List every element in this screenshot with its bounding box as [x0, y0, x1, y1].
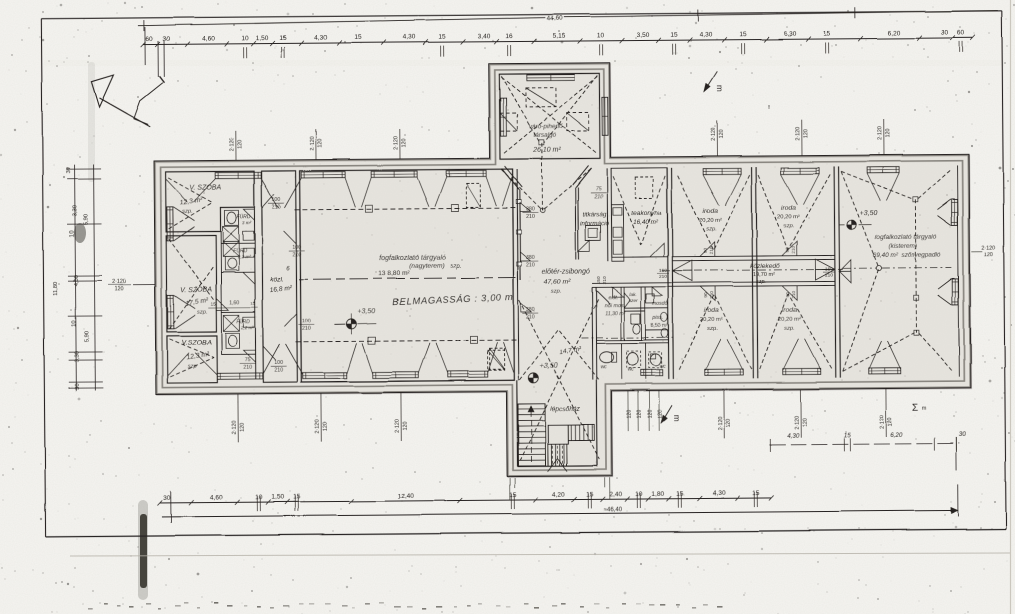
svg-text:30: 30: [941, 30, 949, 37]
svg-text:11,30 m²: 11,30 m²: [605, 311, 625, 317]
svg-text:4,30: 4,30: [315, 35, 328, 42]
svg-text:10: 10: [70, 230, 76, 237]
svg-text:15: 15: [354, 34, 362, 41]
svg-text:210: 210: [302, 326, 311, 332]
svg-text:4,60: 4,60: [209, 494, 222, 501]
svg-text:210: 210: [272, 205, 281, 211]
svg-text:120: 120: [115, 286, 124, 292]
svg-text:2·120: 2·120: [393, 136, 399, 150]
svg-text:közlekedő: közlekedő: [750, 263, 780, 270]
svg-text:titkárság: titkárság: [583, 211, 607, 218]
svg-text:2,40: 2,40: [609, 491, 622, 498]
svg-text:75: 75: [245, 357, 251, 363]
svg-text:210: 210: [526, 214, 535, 220]
svg-text:5,15: 5,15: [553, 33, 566, 40]
svg-text:15: 15: [250, 301, 256, 307]
svg-text:15: 15: [586, 491, 594, 498]
svg-text:120: 120: [888, 417, 894, 426]
svg-text:90: 90: [703, 247, 708, 253]
svg-text:210: 210: [243, 365, 252, 371]
svg-text:3,40: 3,40: [478, 33, 491, 40]
svg-text:+3,50: +3,50: [357, 308, 375, 315]
svg-text:társalgó: társalgó: [533, 132, 556, 139]
svg-text:15: 15: [739, 31, 747, 38]
svg-text:előt.: előt.: [608, 295, 618, 301]
svg-text:120: 120: [317, 139, 323, 148]
svg-text:19,70 m²: 19,70 m²: [753, 272, 775, 278]
svg-text:15: 15: [752, 490, 760, 497]
svg-text:10: 10: [71, 320, 77, 327]
svg-text:30: 30: [162, 36, 170, 43]
svg-text:10: 10: [597, 32, 605, 39]
svg-text:15: 15: [509, 492, 517, 499]
svg-text:szp.: szp.: [450, 263, 461, 269]
svg-text:1,80: 1,80: [651, 491, 664, 498]
svg-text:női mos: női mos: [605, 303, 624, 309]
svg-text:120: 120: [627, 410, 633, 419]
svg-text:6,30: 6,30: [784, 31, 797, 38]
svg-text:120: 120: [237, 140, 243, 149]
svg-text:120: 120: [803, 129, 809, 138]
svg-text:1,50: 1,50: [271, 494, 284, 501]
svg-text:3,50: 3,50: [637, 32, 650, 39]
svg-text:1,60: 1,60: [229, 300, 239, 306]
svg-text:4,20: 4,20: [552, 492, 565, 499]
svg-text:15: 15: [844, 432, 851, 439]
svg-text:2·120: 2·120: [229, 137, 235, 151]
svg-text:120: 120: [648, 409, 654, 418]
svg-text:75: 75: [595, 186, 601, 192]
svg-text:szp.: szp.: [197, 310, 208, 316]
svg-text:120: 120: [726, 419, 732, 428]
svg-text:m: m: [922, 406, 927, 412]
svg-text:120: 120: [240, 423, 246, 432]
svg-text:30: 30: [959, 431, 966, 438]
svg-text:210: 210: [659, 274, 667, 280]
svg-text:210: 210: [292, 252, 301, 258]
svg-text:15: 15: [210, 301, 216, 307]
svg-text:2·120: 2·120: [315, 420, 321, 434]
svg-text:m: m: [715, 85, 724, 92]
svg-text:piss.: piss.: [652, 315, 664, 321]
svg-text:44,60: 44,60: [547, 15, 563, 22]
svg-text:Σ: Σ: [912, 403, 918, 414]
svg-text:előtér-zsibongó: előtér-zsibongó: [542, 268, 590, 275]
svg-text:2·120: 2·120: [309, 137, 315, 151]
svg-text:13 8,80 m²: 13 8,80 m²: [378, 270, 410, 277]
svg-text:11,80: 11,80: [53, 282, 59, 296]
svg-text:2·120: 2·120: [395, 419, 401, 433]
svg-text:2·120: 2·120: [710, 127, 716, 141]
svg-text:4,30: 4,30: [712, 490, 725, 497]
svg-text:V. SZOBA: V. SZOBA: [189, 184, 221, 191]
svg-text:15: 15: [438, 34, 446, 41]
svg-text:iroda: iroda: [782, 307, 797, 314]
svg-text:100: 100: [292, 245, 301, 251]
svg-text:15: 15: [670, 32, 678, 39]
svg-text:4,60: 4,60: [202, 36, 215, 43]
svg-text:12,40: 12,40: [398, 493, 415, 500]
svg-text:iroda: iroda: [704, 307, 719, 314]
svg-text:fogfalkozlató tárgyaló: fogfalkozlató tárgyaló: [380, 255, 446, 263]
svg-text:lépcsőház: lépcsőház: [550, 406, 580, 413]
svg-text:5,90: 5,90: [83, 214, 89, 225]
svg-text:15: 15: [293, 494, 301, 501]
svg-text:100: 100: [302, 319, 311, 325]
svg-text:20,20 m²: 20,20 m²: [700, 317, 723, 323]
svg-text:120: 120: [637, 410, 643, 419]
svg-text:2·120: 2·120: [880, 415, 886, 429]
svg-text:szp: szp: [187, 364, 197, 370]
svg-text:mosdó: mosdó: [652, 301, 668, 307]
svg-text:wc: wc: [628, 367, 635, 373]
svg-text:6,20: 6,20: [888, 30, 901, 37]
svg-text:69,40 m² szőnyegpadló: 69,40 m² szőnyegpadló: [873, 252, 942, 260]
svg-text:210: 210: [825, 272, 833, 278]
svg-text:30: 30: [163, 495, 171, 502]
svg-text:10: 10: [241, 35, 249, 42]
svg-text:+3,50: +3,50: [540, 363, 558, 370]
svg-text:10: 10: [255, 494, 263, 501]
svg-text:120: 120: [718, 130, 724, 139]
svg-text:120: 120: [658, 409, 664, 418]
svg-text:információ: információ: [580, 220, 610, 227]
svg-text:16: 16: [505, 33, 513, 40]
svg-text:közl.: közl.: [270, 276, 284, 283]
svg-text:3,30: 3,30: [75, 351, 81, 362]
svg-text:4,30: 4,30: [700, 32, 713, 39]
svg-text:60: 60: [145, 36, 153, 43]
svg-text:3,30: 3,30: [72, 205, 78, 216]
svg-text:1,50: 1,50: [256, 35, 269, 42]
svg-text:+3,50: +3,50: [860, 210, 878, 217]
svg-text:15: 15: [676, 491, 684, 498]
svg-text:100: 100: [274, 360, 283, 366]
svg-text:2·120: 2·120: [982, 245, 996, 251]
svg-text:2·120: 2·120: [232, 420, 238, 434]
svg-text:iroda: iroda: [781, 205, 796, 212]
svg-text:≈46,40: ≈46,40: [604, 507, 623, 513]
svg-text:4,30: 4,30: [403, 34, 416, 41]
svg-text:150: 150: [596, 276, 602, 284]
svg-text:5,90: 5,90: [84, 331, 90, 342]
svg-text:2·120: 2·120: [795, 127, 801, 141]
svg-text:60: 60: [957, 30, 965, 37]
svg-text:m: m: [672, 414, 681, 421]
svg-text:210: 210: [527, 262, 536, 268]
svg-text:szp.: szp.: [182, 209, 193, 215]
svg-text:wc: wc: [601, 364, 608, 370]
svg-text:fogfalkozlató tárgyaló: fogfalkozlató tárgyaló: [874, 234, 937, 242]
svg-text:120: 120: [803, 418, 809, 427]
svg-text:szp.: szp.: [784, 326, 795, 332]
svg-text:(kisterem): (kisterem): [889, 243, 917, 250]
svg-text:szp.: szp.: [756, 279, 766, 285]
svg-text:2,2 m²: 2,2 m²: [236, 254, 251, 259]
svg-text:teakonyha: teakonyha: [631, 210, 662, 217]
svg-text:4,30: 4,30: [787, 433, 800, 440]
svg-text:30: 30: [66, 167, 72, 174]
svg-text:20,20 m²: 20,20 m²: [778, 317, 801, 323]
svg-text:6,20: 6,20: [890, 432, 903, 439]
svg-text:2,2 m²: 2,2 m²: [240, 325, 255, 330]
svg-text:16,40 m²: 16,40 m²: [633, 219, 659, 226]
svg-text:lak.: lak.: [629, 292, 637, 298]
svg-text:26,10 m²: 26,10 m²: [532, 147, 561, 154]
svg-text:120: 120: [885, 128, 891, 137]
svg-text:20,20 m²: 20,20 m²: [699, 217, 722, 223]
svg-text:wc: wc: [660, 364, 667, 370]
svg-text:47,60 m²: 47,60 m²: [544, 279, 572, 286]
svg-text:30: 30: [75, 383, 81, 390]
svg-text:120: 120: [403, 421, 409, 430]
svg-text:(nagyterem): (nagyterem): [409, 263, 445, 270]
svg-text:2·120: 2·120: [795, 416, 801, 430]
svg-text:120: 120: [401, 138, 407, 147]
svg-text:210: 210: [274, 368, 283, 374]
svg-text:V. SZOBA: V. SZOBA: [180, 287, 212, 294]
svg-text:4,00: 4,00: [74, 275, 80, 286]
svg-text:210: 210: [602, 276, 608, 284]
svg-text:15: 15: [279, 35, 287, 42]
svg-text:2·120: 2·120: [112, 279, 126, 285]
svg-text:V.SZOBA: V.SZOBA: [182, 340, 212, 347]
svg-text:3 m²: 3 m²: [242, 220, 252, 225]
svg-text:210: 210: [593, 194, 603, 200]
svg-text:8,50 m²: 8,50 m²: [651, 323, 669, 329]
svg-text:210: 210: [526, 314, 535, 320]
svg-text:szer: szer: [629, 298, 639, 304]
svg-text:15: 15: [823, 31, 831, 38]
svg-text:10: 10: [635, 491, 643, 498]
svg-text:váró-pihenő: váró-pihenő: [529, 123, 563, 130]
svg-text:szp.: szp.: [706, 226, 717, 232]
svg-text:iroda: iroda: [703, 207, 718, 214]
svg-text:20,20 m²: 20,20 m²: [777, 215, 800, 221]
svg-text:2·120: 2·120: [877, 126, 883, 140]
svg-text:120: 120: [984, 252, 993, 258]
svg-text:120: 120: [323, 422, 329, 431]
svg-text:szp.: szp.: [551, 289, 562, 295]
svg-text:szp.: szp.: [707, 326, 718, 332]
svg-text:szp.: szp.: [783, 224, 794, 230]
svg-text:2·120: 2·120: [718, 416, 724, 430]
